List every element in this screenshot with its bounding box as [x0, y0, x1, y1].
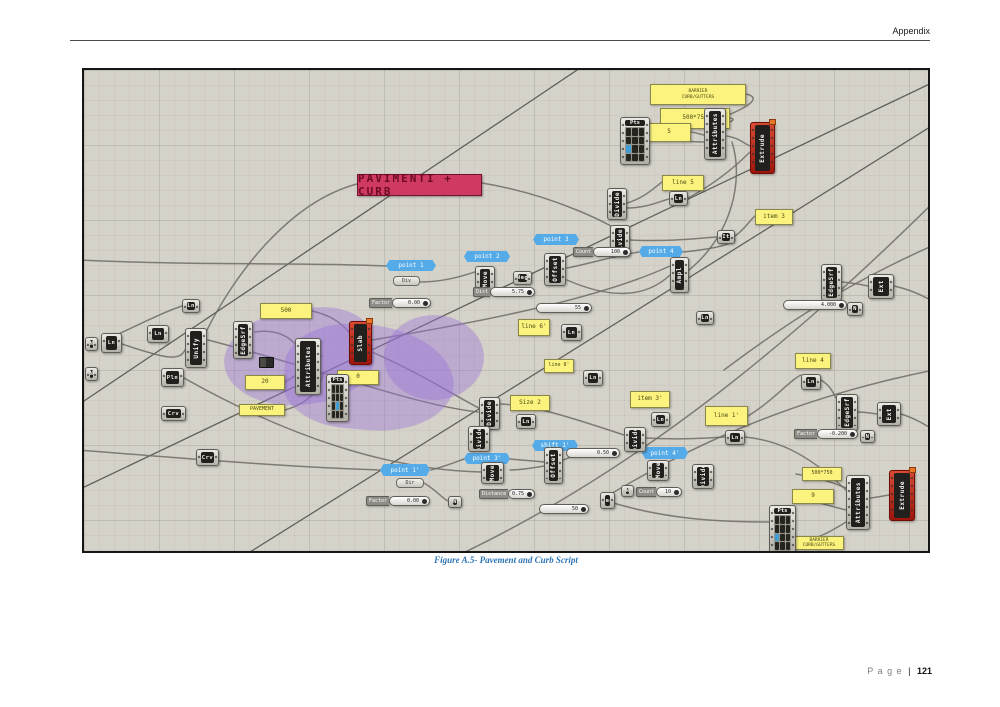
- component-n[interactable]: N: [448, 496, 462, 508]
- label-point1[interactable]: point 1: [386, 260, 436, 271]
- component-ln[interactable]: Ln: [182, 299, 200, 313]
- slider-knob[interactable]: [612, 451, 617, 456]
- component-neg[interactable]: Neg: [513, 271, 532, 285]
- panel-line6[interactable]: line 6': [518, 319, 550, 336]
- component-ln[interactable]: Ln: [651, 412, 670, 427]
- component-divide[interactable]: Divide: [692, 464, 714, 489]
- label-point4p[interactable]: point 4': [642, 447, 688, 459]
- component-n[interactable]: N: [860, 430, 875, 443]
- panel-barrier-bottom[interactable]: BARRIER CURB/GUTTERS: [794, 536, 844, 550]
- boolean-toggle[interactable]: [259, 357, 274, 368]
- panel-size-bottom[interactable]: 500*750: [802, 467, 842, 481]
- slider-knob[interactable]: [623, 250, 628, 255]
- component-attributes[interactable]: Attributes: [704, 108, 726, 160]
- panel-line1p[interactable]: line 1': [705, 406, 748, 426]
- header-title: Appendix: [892, 26, 930, 36]
- slider-dist-050[interactable]: 0.50: [566, 448, 620, 458]
- component-edgesrf[interactable]: EdgeSrf: [821, 264, 842, 301]
- pts-keypad[interactable]: [331, 384, 344, 419]
- panel-500[interactable]: 500: [260, 303, 312, 319]
- slider-count-100[interactable]: Count100: [573, 247, 631, 257]
- panel-b-bottom[interactable]: 9: [792, 489, 834, 504]
- component-ln[interactable]: Ln: [801, 374, 821, 390]
- slider-knob[interactable]: [839, 303, 844, 308]
- group-highlight: [384, 315, 484, 400]
- slider-knob[interactable]: [581, 507, 586, 512]
- page-footer: P a g e | 121: [867, 666, 932, 676]
- slider-knob[interactable]: [423, 301, 428, 306]
- component-pts[interactable]: Pts: [620, 117, 650, 165]
- slider-55[interactable]: 55: [536, 303, 592, 313]
- component-attributes[interactable]: Attributes: [846, 475, 870, 530]
- slider-distance-075[interactable]: Distance0.75: [479, 489, 535, 499]
- component-offset[interactable]: Offset: [544, 447, 563, 484]
- slider-knob[interactable]: [422, 499, 427, 504]
- slider-dist[interactable]: Dist5.75: [473, 287, 535, 297]
- component-attributes[interactable]: Attributes: [295, 338, 321, 395]
- header-rule: [70, 40, 930, 41]
- component-ln[interactable]: Ln: [147, 325, 169, 343]
- warning-flag: [366, 318, 373, 324]
- title-panel[interactable]: PAVIMENTI + CURB: [357, 174, 482, 196]
- component-ext[interactable]: Ext: [877, 402, 901, 426]
- warning-flag: [909, 467, 916, 473]
- component-ln[interactable]: Ln: [669, 191, 688, 206]
- component-item[interactable]: It: [717, 230, 735, 244]
- component-unify[interactable]: Unify: [185, 328, 207, 368]
- component-slab[interactable]: Slab: [349, 321, 372, 365]
- pts-keypad[interactable]: [774, 515, 791, 551]
- component-divide[interactable]: Divide: [468, 426, 490, 452]
- panel-b-top[interactable]: 5: [647, 123, 691, 142]
- component-crv[interactable]: Crv: [196, 449, 219, 466]
- label-point2[interactable]: point 2: [464, 251, 510, 262]
- warning-flag: [769, 119, 776, 125]
- slider-knob[interactable]: [674, 490, 679, 495]
- page-number: 121: [917, 666, 932, 676]
- component-neg[interactable]: Neg: [600, 492, 615, 509]
- component-divide[interactable]: Divide: [607, 188, 627, 220]
- slider-4000[interactable]: 4.000: [783, 300, 847, 310]
- panel-line5[interactable]: line 5: [662, 175, 704, 191]
- component-ln[interactable]: Ln: [583, 370, 603, 386]
- component-amplitude[interactable]: Ampl: [670, 257, 689, 293]
- slider-factor-a[interactable]: Factor0.00: [369, 298, 431, 308]
- component-n[interactable]: N: [621, 485, 634, 497]
- component-ext[interactable]: Ext: [868, 274, 894, 299]
- component-ln[interactable]: Ln: [696, 311, 714, 325]
- component-n[interactable]: N: [85, 367, 98, 381]
- panel-line8[interactable]: line 8': [544, 359, 574, 373]
- document-page: Appendix: [0, 0, 1000, 707]
- component-move[interactable]: Move: [481, 462, 504, 484]
- component-crv[interactable]: Crv: [161, 406, 186, 421]
- panel-item3[interactable]: item 3: [755, 209, 793, 225]
- component-div-pill[interactable]: Div: [393, 276, 420, 286]
- slider-count-10[interactable]: Count10: [636, 487, 682, 497]
- slider-knob[interactable]: [527, 492, 532, 497]
- slider-knob[interactable]: [850, 432, 855, 437]
- component-divide[interactable]: Divide: [624, 427, 646, 452]
- slider-knob[interactable]: [527, 290, 532, 295]
- panel-size2[interactable]: Size 2: [510, 395, 550, 411]
- label-point3[interactable]: point 3: [533, 234, 579, 245]
- slider-50[interactable]: 50: [539, 504, 589, 514]
- component-pts[interactable]: Pts: [769, 505, 796, 553]
- component-extrude[interactable]: Extrude: [889, 470, 915, 521]
- grasshopper-canvas[interactable]: PAVIMENTI + CURB BARRIER CURB/GUTTERS 50…: [82, 68, 930, 553]
- component-n[interactable]: N: [85, 337, 98, 351]
- panel-barrier-top[interactable]: BARRIER CURB/GUTTERS: [650, 84, 746, 105]
- pts-keypad[interactable]: [625, 127, 645, 162]
- component-offset[interactable]: Offset: [544, 253, 566, 286]
- component-extrude[interactable]: Extrude: [750, 122, 775, 174]
- component-n[interactable]: N: [847, 302, 863, 316]
- slider-factor-b[interactable]: Factor0.00: [366, 496, 430, 506]
- slider-factor-0200[interactable]: Factor-0.200: [794, 429, 858, 439]
- component-move[interactable]: Move: [647, 460, 669, 481]
- component-dir-pill[interactable]: Dir: [396, 478, 424, 488]
- panel-pavement[interactable]: PAVEMENT: [239, 404, 285, 416]
- component-ln[interactable]: Ln: [725, 430, 745, 445]
- footer-separator: |: [908, 666, 911, 676]
- panel-item3p[interactable]: item 3': [630, 391, 670, 408]
- component-ln[interactable]: Ln: [561, 324, 582, 341]
- component-edgesrf[interactable]: EdgeSrf: [836, 394, 858, 431]
- panel-line4[interactable]: line 4: [795, 353, 831, 369]
- component-pln[interactable]: Pln: [161, 368, 184, 387]
- figure-caption: Figure A.5- Pavement and Curb Script: [82, 555, 930, 565]
- panel-20[interactable]: 20: [245, 375, 285, 390]
- component-ln[interactable]: Ln: [101, 333, 122, 353]
- component-pts[interactable]: Pts: [326, 374, 349, 422]
- page-word: P a g e: [867, 666, 902, 676]
- label-point1p[interactable]: point 1': [380, 464, 430, 476]
- component-ln[interactable]: Ln: [516, 414, 536, 429]
- slider-knob[interactable]: [584, 306, 589, 311]
- component-edgesrf[interactable]: EdgeSrf: [233, 321, 253, 359]
- label-point4[interactable]: point 4: [639, 246, 683, 257]
